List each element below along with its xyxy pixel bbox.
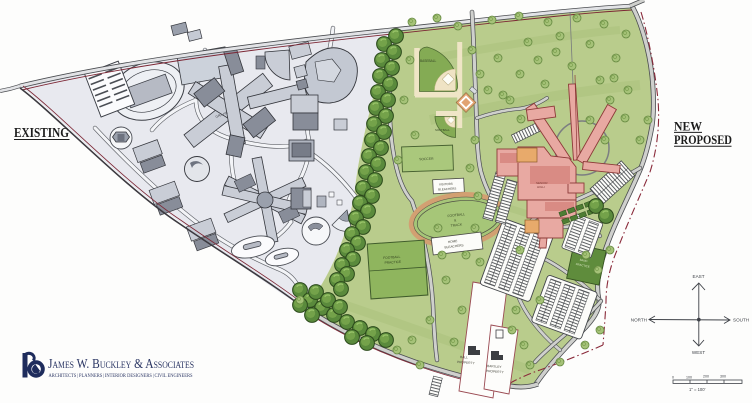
svg-text:SOFTBALL: SOFTBALL (435, 128, 450, 132)
svg-text:James W. Buckley & Associates: James W. Buckley & Associates (48, 356, 194, 371)
svg-text:VISITORS: VISITORS (439, 182, 453, 187)
svg-text:WEST: WEST (692, 350, 705, 355)
svg-text:NORTH: NORTH (631, 317, 647, 322)
svg-text:HIGH: HIGH (537, 185, 545, 189)
svg-text:BASEBALL: BASEBALL (420, 59, 437, 63)
svg-text:PROPOSED: PROPOSED (674, 132, 732, 147)
svg-text:BALL: BALL (460, 355, 468, 360)
svg-text:1" = 100': 1" = 100' (689, 387, 706, 392)
svg-text:EAST: EAST (693, 274, 705, 279)
svg-text:300: 300 (720, 375, 726, 379)
svg-text:SOCCER: SOCCER (419, 157, 434, 162)
svg-text:EXISTING: EXISTING (14, 125, 69, 140)
svg-text:0: 0 (672, 376, 674, 380)
svg-text:200: 200 (703, 375, 709, 379)
svg-text:100: 100 (686, 376, 692, 380)
svg-text:SOUTH: SOUTH (733, 318, 749, 323)
svg-text:ARCHITECTS | PLANNERS | INTERI: ARCHITECTS | PLANNERS | INTERIOR DESIGNE… (49, 374, 193, 379)
